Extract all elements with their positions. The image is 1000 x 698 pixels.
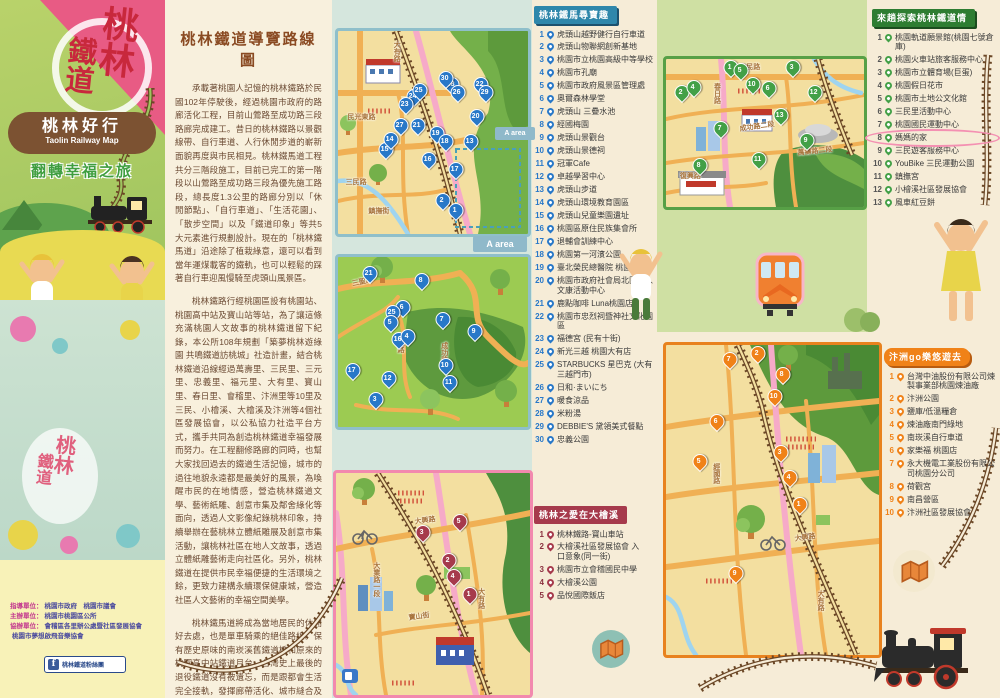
map-pin-icon	[896, 407, 906, 417]
map2-markers: 218625516479101117123	[338, 257, 528, 427]
poi-list-item[interactable]: 9 虎頭山景觀台	[534, 133, 660, 143]
credit-row: 協辦單位： 會稽區各里辦公處暨社區發展協會	[10, 622, 160, 632]
red-list-title: 桃林之愛在大檜溪	[534, 506, 627, 524]
map-marker[interactable]: 10	[436, 354, 457, 375]
poi-list-item[interactable]: 3 桃園市立桃園高級中等學校	[534, 55, 660, 65]
a-area-title: A area	[473, 236, 527, 252]
intro-title: 桃林鐵道導覽路線圖	[175, 28, 322, 70]
poi-list-item[interactable]: 8 經國梅園	[534, 120, 660, 130]
poi-list-item[interactable]: 29 DEBBIE'S 黛領美式餐點	[534, 422, 660, 432]
blue-list-title: 桃林鐵馬尋寶趣	[534, 6, 617, 24]
map-pin-icon	[884, 81, 894, 91]
map-pin-icon	[546, 408, 556, 418]
poi-list-item[interactable]: 7 桃園國民運動中心	[872, 120, 998, 130]
poi-list-item[interactable]: 1 桃林鐵路-寶山車站	[534, 530, 646, 540]
dot-decoration	[8, 520, 38, 550]
map-pin-icon	[546, 542, 556, 552]
map-marker[interactable]: 20	[466, 106, 487, 127]
map-marker[interactable]: 9	[726, 562, 747, 583]
orange-list-panel: 汴洲go樂悠遊去 1 台灣中油股份有限公司煉製事業部桃園煉油廠 2 汴洲公園 3	[884, 347, 998, 521]
poi-list-item[interactable]: 4 大檜溪公園	[534, 578, 646, 588]
map-marker[interactable]: 7	[432, 309, 453, 330]
map-pin-icon	[546, 565, 556, 575]
blue-list-panel: 桃林鐵馬尋寶趣 1 虎頭山越野健行自行車道 2 虎頭山物聯網創新基地 3	[534, 5, 660, 448]
poi-list-item[interactable]: 6 奧爾森林學堂	[534, 94, 660, 104]
map-pin-icon	[546, 107, 556, 117]
green-list-title: 來趟探索桃林鐵道情	[872, 9, 975, 27]
intro-paragraph-3: 桃林鐵馬道將成為當地居民的休閒好去處，也是單車騎乘的絕佳路線。保有歷史原味的南崁…	[175, 617, 322, 698]
map-marker[interactable]: 11	[439, 371, 460, 392]
map-pin-icon	[546, 159, 556, 169]
poi-list-item[interactable]: 5 品悅國際飯店	[534, 591, 646, 601]
map-marker[interactable]: 21	[360, 263, 381, 284]
dot-decoration	[10, 316, 36, 342]
poi-list-item[interactable]: 11 冠軍Cafe	[534, 159, 660, 169]
map-marker[interactable]: 5	[689, 451, 710, 472]
map-pin-icon	[546, 146, 556, 156]
credit-row: 指導單位： 桃園市政府 桃園市議會	[10, 602, 160, 612]
poi-list-item[interactable]: 9 三民遊客服務中心	[872, 146, 998, 156]
railway-logo: 鐵道 桃林	[61, 1, 137, 99]
map-marker[interactable]: 12	[379, 368, 400, 389]
map-pin-icon	[546, 591, 556, 601]
map-pin-icon	[884, 133, 894, 143]
jumping-child-illustration	[612, 238, 670, 330]
map-marker[interactable]: 6	[707, 411, 728, 432]
credits-zone: 指導單位： 桃園市政府 桃園市議會 主辦單位： 桃園市桃園區公所 協辦單位： 會…	[0, 560, 165, 698]
poi-list-item[interactable]: 14 虎頭山環境教育園區	[534, 198, 660, 208]
map-pin-icon	[884, 197, 894, 207]
map-marker[interactable]: 3	[782, 57, 803, 78]
map-pin-icon	[884, 68, 894, 78]
facebook-icon: f	[48, 659, 59, 670]
orange-train-icon	[753, 252, 807, 318]
map-pin-icon	[546, 211, 556, 221]
map-marker[interactable]: 6	[758, 78, 779, 99]
cover-title-en: Taolin Railway Map	[8, 136, 156, 145]
poi-list-item[interactable]: 11 鎮撫宮	[872, 172, 998, 182]
map-marker[interactable]: 7	[719, 349, 740, 370]
map-marker[interactable]: 17	[445, 159, 466, 180]
map-pin-icon	[884, 107, 894, 117]
map-pin-icon	[896, 494, 906, 504]
credits: 指導單位： 桃園市政府 桃園市議會 主辦單位： 桃園市桃園區公所 協辦單位： 會…	[10, 602, 160, 642]
map-pin-icon	[884, 94, 894, 104]
map-marker[interactable]: 8	[689, 155, 710, 176]
map-pin-icon	[546, 68, 556, 78]
map-pin-icon	[546, 276, 556, 286]
map-pin-icon	[546, 81, 556, 91]
map-pin-icon	[546, 198, 556, 208]
map-marker[interactable]: 2	[747, 342, 768, 363]
map-pin-icon	[546, 434, 556, 444]
folded-map-icon	[893, 550, 935, 592]
map-pin-icon	[546, 237, 556, 247]
green-list-panel: 來趟探索桃林鐵道情 1 桃園軌道願景館(桃園七號倉庫) 2 桃園火車站旅客服務中…	[872, 8, 998, 211]
map-pin-icon	[896, 446, 906, 456]
map-pin-icon	[546, 395, 556, 405]
map-marker[interactable]: 13	[770, 105, 791, 126]
poi-list-item[interactable]: 3 桃園市立體育場(巨蛋)	[872, 68, 998, 78]
poi-list-item[interactable]: 1 虎頭山越野健行自行車道	[534, 30, 660, 40]
map-marker[interactable]: 10	[764, 386, 785, 407]
map-marker[interactable]: 3	[770, 442, 791, 463]
map-pin-icon	[896, 459, 906, 469]
map-pin-icon	[546, 172, 556, 182]
map-pin-icon	[546, 55, 556, 65]
green-list-items: 1 桃園軌道願景館(桃園七號倉庫) 2 桃園火車站旅客服務中心 3 桃園市立體育…	[872, 33, 998, 208]
a-area-tag: A area	[495, 127, 535, 140]
poi-list-item[interactable]: 8 荷觀宮	[884, 482, 998, 492]
poi-list-item[interactable]: 8 媽媽的家	[872, 133, 998, 143]
map4-markers: 12451063121397118	[666, 59, 864, 207]
map3-markers: 35241	[336, 473, 530, 695]
intro-panel: 桃林鐵道導覽路線圖 承載著桃園人記憶的桃林鐵路於民國102年停駛後，經過桃園市政…	[165, 0, 332, 698]
map-pin-icon	[546, 360, 556, 370]
map-pin-icon	[896, 481, 906, 491]
map-pin-icon	[546, 334, 556, 344]
poi-list-item[interactable]: 6 三民里活動中心	[872, 107, 998, 117]
poi-list-item[interactable]: 10 YouBike 三民運動公園	[872, 159, 998, 169]
poi-list-item[interactable]: 1 桃園軌道願景館(桃園七號倉庫)	[872, 33, 998, 52]
map-pin-icon	[546, 382, 556, 392]
poi-list-item[interactable]: 5 桃園市政府風景區管理處	[534, 81, 660, 91]
poi-list-item[interactable]: 3 桃園市立會稽國民中學	[534, 565, 646, 575]
poi-list-item[interactable]: 7 永大機電工業股份有限公司桃園分公司	[884, 459, 998, 478]
poi-list-item[interactable]: 10 汴洲社區發展協會	[884, 508, 998, 518]
map-pin-icon	[884, 146, 894, 156]
map-pin-icon	[884, 171, 894, 181]
map-pin-icon	[546, 298, 556, 308]
map-pin-icon	[546, 133, 556, 143]
red-list-items: 1 桃林鐵路-寶山車站 2 大檜溪社區發展協會 入口意象(同一街) 3 桃園市立…	[534, 530, 646, 601]
map-marker[interactable]: 3	[413, 521, 434, 542]
poi-list-item[interactable]: 28 米粉湯	[534, 409, 660, 419]
red-list-panel: 桃林之愛在大檜溪 1 桃林鐵路-寶山車站 2 大檜溪社區發展協會 入口意象(同一…	[534, 505, 646, 604]
map-marker[interactable]: 4	[779, 466, 800, 487]
poi-list-item[interactable]: 13 虎頭山步道	[534, 185, 660, 195]
map-dakuaixi[interactable]: 大興路大業路一段寶山街大有路 35241	[333, 470, 533, 698]
map-pin-icon	[546, 94, 556, 104]
steam-train-icon	[86, 194, 158, 234]
facebook-badge[interactable]: f 桃林鐵道粉絲團	[44, 656, 126, 673]
map-pin-icon	[896, 420, 906, 430]
poi-list-item[interactable]: 24 新光三越 桃園大有店	[534, 347, 660, 357]
map5-markers: 72810653419	[666, 345, 879, 655]
cover-title: 桃林好行	[8, 117, 156, 136]
poi-list-item[interactable]: 6 家樂福 桃園店	[884, 446, 998, 456]
poi-list-item[interactable]: 7 虎頭山 三疊水池	[534, 107, 660, 117]
dot-decoration	[52, 338, 68, 354]
poi-list-item[interactable]: 1 台灣中油股份有限公司煉製事業部桃園煉油廠	[884, 372, 998, 391]
poi-list-item[interactable]: 4 煉油廠南門綠地	[884, 420, 998, 430]
poi-list-item[interactable]: 16 桃園區原住民族集會所	[534, 224, 660, 234]
map-pin-icon	[546, 120, 556, 130]
jumping-child-illustration	[925, 205, 997, 330]
folded-map-icon	[592, 630, 630, 668]
poi-list-item[interactable]: 4 桃園假日花市	[872, 81, 998, 91]
orange-list-items: 1 台灣中油股份有限公司煉製事業部桃園煉油廠 2 汴洲公園 3 鹽庫/低溫糧倉	[884, 372, 998, 518]
railway-logo-stamp: 鐵道 桃林	[22, 428, 98, 524]
map-pin-icon	[546, 250, 556, 260]
dot-decoration	[60, 536, 78, 554]
poi-list-item[interactable]: 30 忠義公園	[534, 435, 660, 445]
poi-list-item[interactable]: 10 虎頭山景德祠	[534, 146, 660, 156]
map-pin-icon	[546, 529, 556, 539]
map-marker[interactable]: 5	[450, 510, 471, 531]
map-marker[interactable]: 8	[411, 269, 432, 290]
map-pin-icon	[546, 224, 556, 234]
orange-list-title: 汴洲go樂悠遊去	[884, 348, 970, 366]
map-pin-icon	[896, 394, 906, 404]
bush-icon	[842, 292, 882, 332]
credit-row: 桃園市夢想啟飛音樂協會	[10, 632, 160, 642]
brochure: 鐵道 桃林 桃林好行 Taolin Railway Map 翻轉幸福之旅	[0, 0, 1000, 698]
facebook-label: 桃林鐵道粉絲團	[62, 660, 104, 669]
map-marker[interactable]: 3	[365, 388, 386, 409]
intro-paragraph-1: 承載著桃園人記憶的桃林鐵路於民國102年停駛後，經過桃園市政府的路廊活化工程，目…	[175, 82, 322, 286]
poi-list-item[interactable]: 12 小檜溪社區發展協會	[872, 185, 998, 195]
map-pin-icon	[884, 55, 894, 65]
map-marker[interactable]: 9	[796, 130, 817, 151]
blue-list-items: 1 虎頭山越野健行自行車道 2 虎頭山物聯網創新基地 3 桃園市立桃園高級中等學…	[534, 30, 660, 445]
map-a-area-park[interactable]: 三聖路公園路成功路 218625516479101117123	[335, 254, 531, 430]
map-marker[interactable]: 11	[748, 149, 769, 170]
map-pin-icon	[896, 433, 906, 443]
map-bianzhou[interactable]: 經國路大興路大有路 72810653419	[663, 342, 882, 658]
map-pin-icon	[546, 347, 556, 357]
map-pin-icon	[884, 184, 894, 194]
map-pin-icon	[884, 32, 894, 42]
map-marker[interactable]: 21	[407, 114, 428, 135]
poi-list-item[interactable]: 25 STARBUCKS 星巴克 (大有三越門市)	[534, 360, 660, 379]
map-pin-icon	[884, 159, 894, 169]
poi-list-item[interactable]: 3 鹽庫/低溫糧倉	[884, 407, 998, 417]
poi-list-item[interactable]: 2 桃園火車站旅客服務中心	[872, 55, 998, 65]
poi-list-item[interactable]: 26 日和·まいにち	[534, 383, 660, 393]
poi-list-item[interactable]: 5 桃園市土地公文化館	[872, 94, 998, 104]
poi-list-item[interactable]: 9 南昌營區	[884, 495, 998, 505]
poi-list-item[interactable]: 23 福德宮 (民有十街)	[534, 334, 660, 344]
map-pin-icon	[546, 263, 556, 273]
map-marker[interactable]: 13	[460, 131, 481, 152]
map-marker[interactable]: 16	[419, 149, 440, 170]
poi-list-item[interactable]: 15 虎頭山兒童樂園遺址	[534, 211, 660, 221]
poi-list-item[interactable]: 27 暖食涼品	[534, 396, 660, 406]
poi-list-item[interactable]: 2 虎頭山物聯網創新基地	[534, 42, 660, 52]
map-pin-icon	[546, 311, 556, 321]
poi-list-item[interactable]: 2 汴洲公園	[884, 394, 998, 404]
map-pin-icon	[896, 507, 906, 517]
map-marker[interactable]: 8	[773, 364, 794, 385]
map-marker[interactable]: 7	[711, 118, 732, 139]
map-pin-icon	[546, 578, 556, 588]
credit-row: 主辦單位： 桃園市桃園區公所	[10, 612, 160, 622]
map-pin-icon	[896, 371, 906, 381]
map-marker[interactable]: 1	[459, 584, 480, 605]
map-marker[interactable]: 10	[743, 73, 764, 94]
poi-list-item[interactable]: 2 大檜溪社區發展協會 入口意象(同一街)	[534, 542, 646, 561]
map-pin-icon	[546, 185, 556, 195]
map-pin-icon	[546, 42, 556, 52]
map-pin-icon	[546, 29, 556, 39]
poi-list-item[interactable]: 12 卓越學習中心	[534, 172, 660, 182]
poi-list-item[interactable]: 5 南崁溪自行車道	[884, 433, 998, 443]
cover-panel: 鐵道 桃林 桃林好行 Taolin Railway Map 翻轉幸福之旅	[0, 0, 165, 698]
map-marker[interactable]: 9	[464, 320, 485, 341]
map-station-area[interactable]: 三民路春日路成功路二段萬壽路二段復興路 12451063121397118	[663, 56, 867, 210]
cover-title-badge: 桃林好行 Taolin Railway Map	[8, 112, 156, 154]
dot-decoration	[116, 524, 140, 548]
dot-decoration	[120, 320, 140, 340]
poi-list-item[interactable]: 4 桃園市孔廟	[534, 68, 660, 78]
map-marker[interactable]: 17	[343, 360, 364, 381]
steam-locomotive-icon	[872, 626, 980, 692]
map-pin-icon	[546, 421, 556, 431]
map-pin-icon	[884, 120, 894, 130]
map-marker[interactable]: 1	[790, 494, 811, 515]
cover-subtitle: 翻轉幸福之旅	[8, 160, 156, 181]
map-marker[interactable]: 12	[804, 82, 825, 103]
intro-paragraph-2: 桃林鐵路行經桃園區設有桃園站、桃園高中站及寶山站等站，為了讓這條充滿桃園人文故事…	[175, 295, 322, 608]
